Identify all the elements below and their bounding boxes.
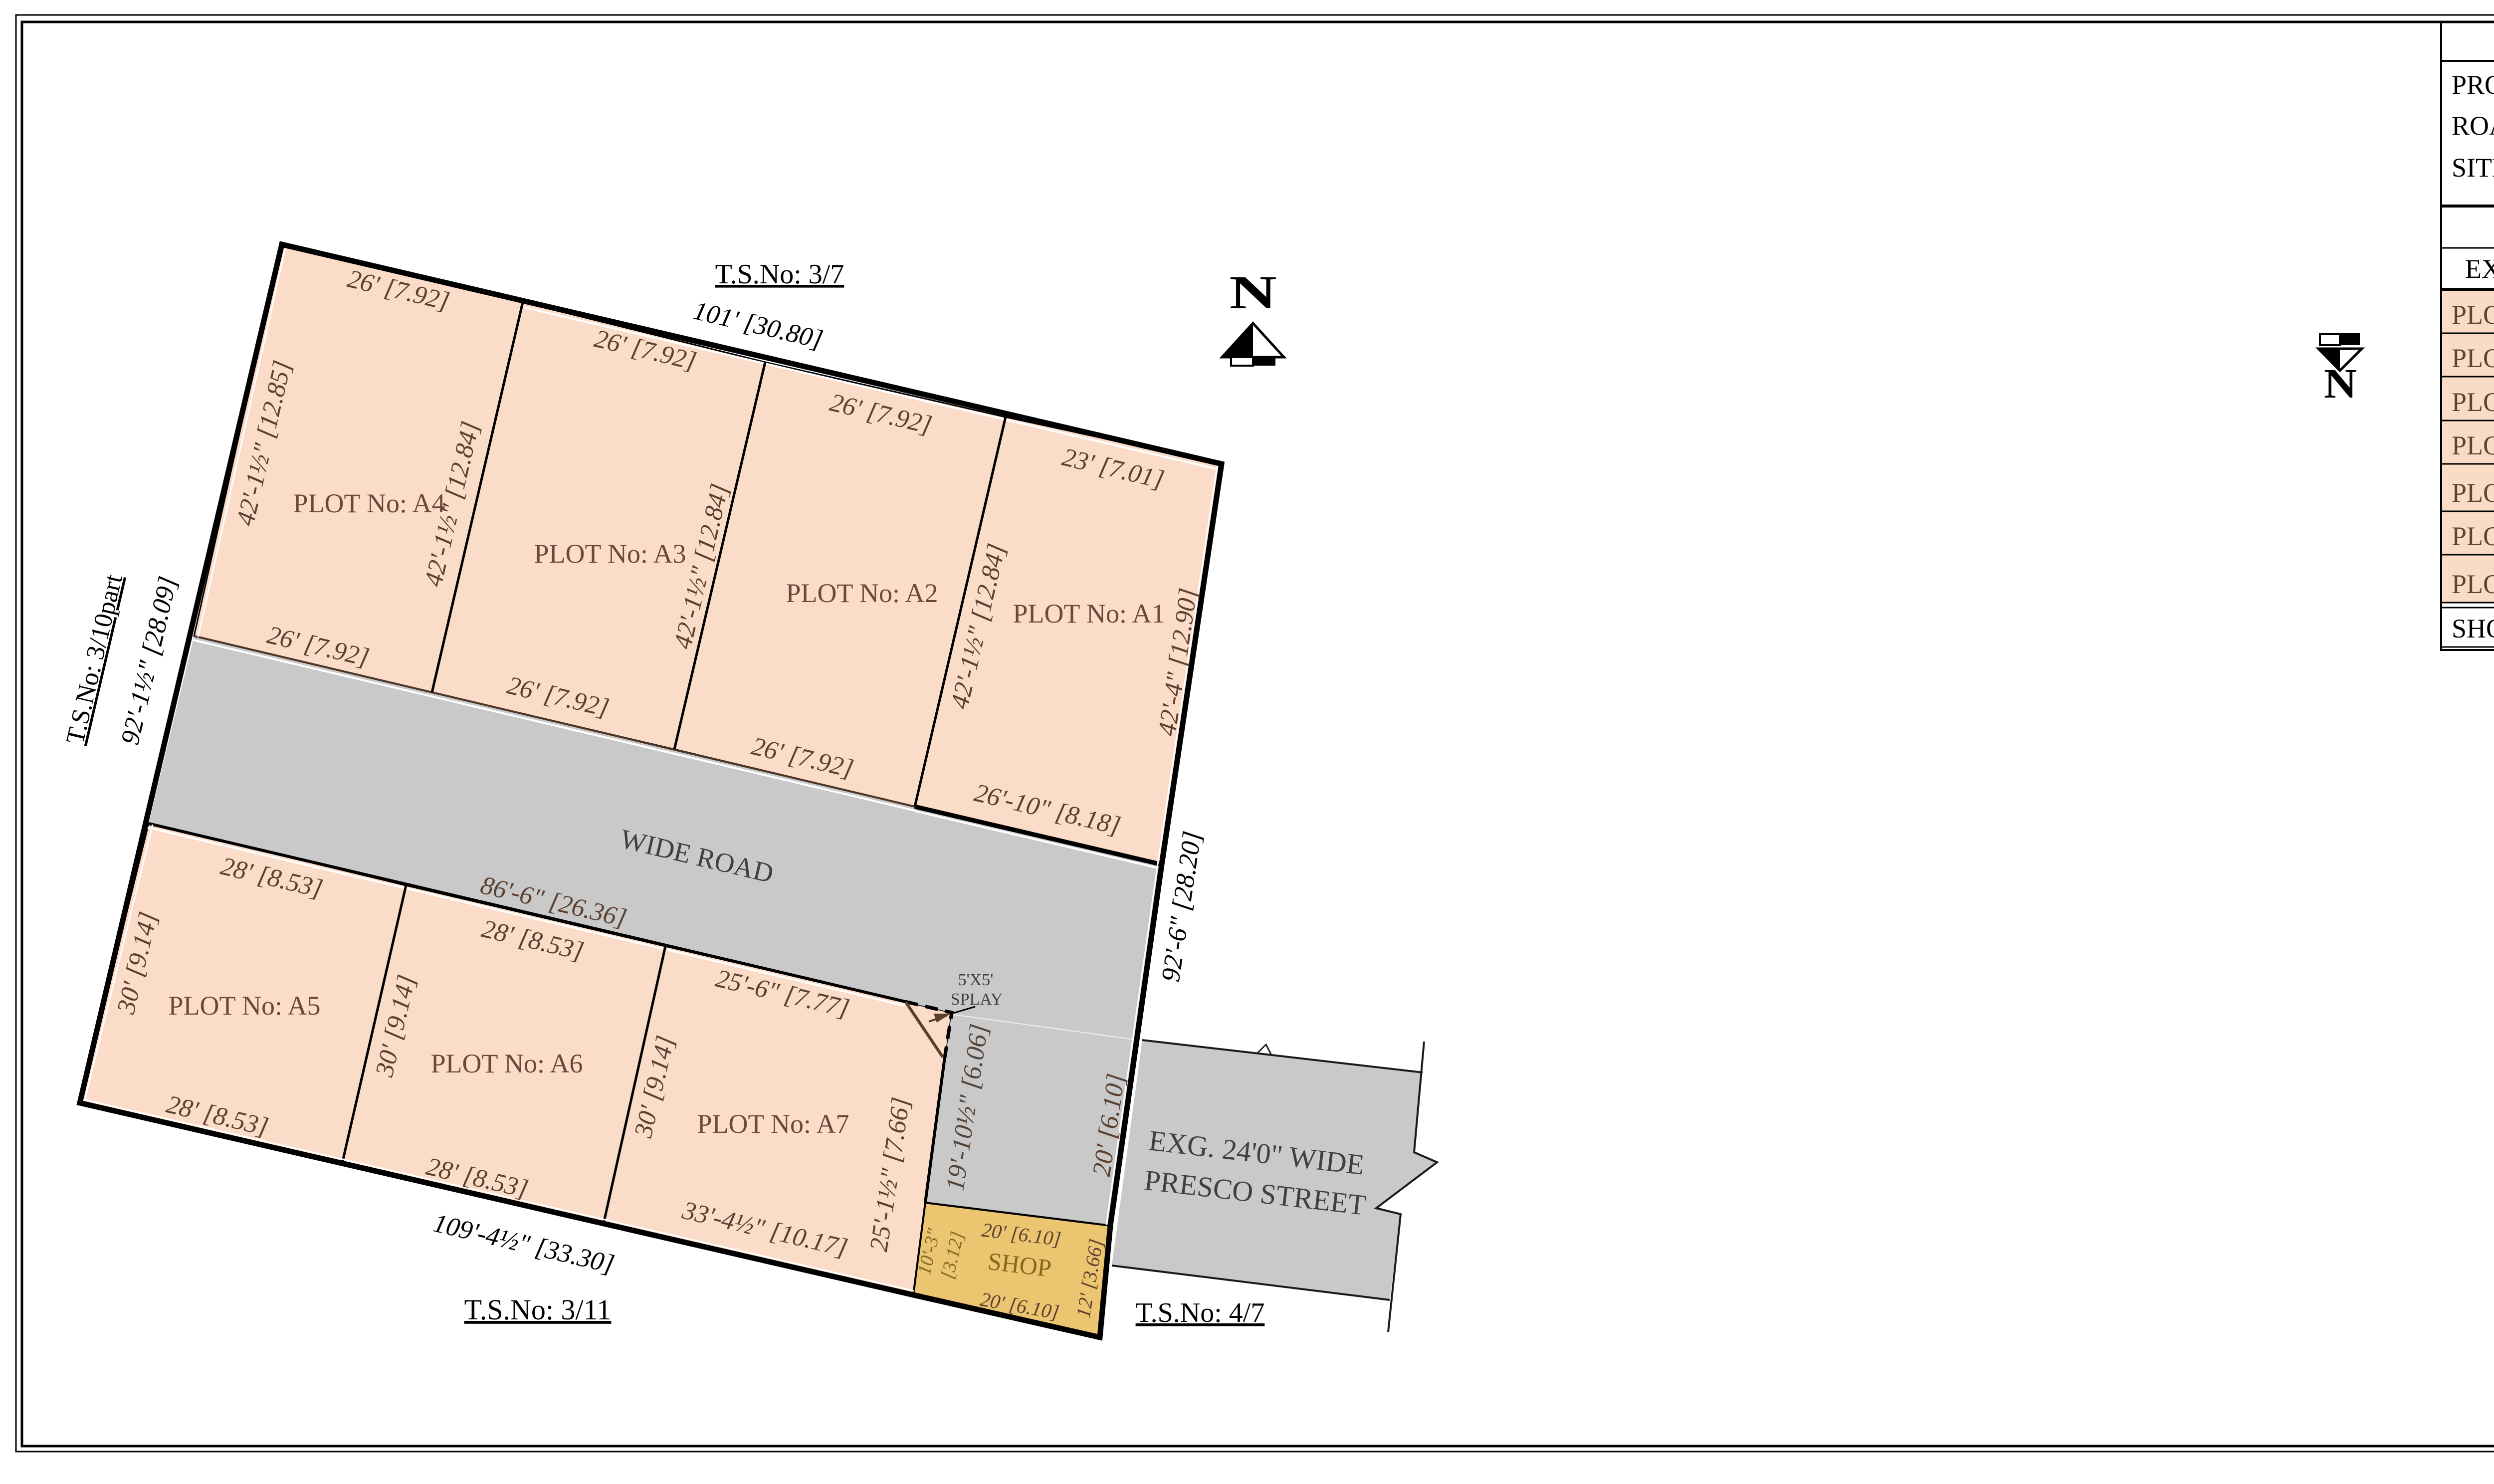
svg-text:T.S.No: 4/7: T.S.No: 4/7 — [1136, 1297, 1265, 1328]
svg-text:PLOT No: A7: PLOT No: A7 — [697, 1109, 849, 1139]
svg-text:SHOP: SHOP — [2452, 614, 2494, 643]
svg-text:PLOT No: A1: PLOT No: A1 — [1013, 599, 1165, 629]
svg-text:5'X5': 5'X5' — [958, 971, 994, 989]
svg-text:EXTENT IN: EXTENT IN — [2465, 254, 2494, 284]
svg-text:SITE BOUNDARY: SITE BOUNDARY — [2452, 153, 2494, 183]
svg-text:PLOT No: A3: PLOT No: A3 — [534, 539, 686, 569]
svg-text:T.S.No: 3/11: T.S.No: 3/11 — [464, 1293, 612, 1326]
svg-text:N: N — [1230, 266, 1277, 319]
svg-text:PLOT No: A6: PLOT No: A6 — [2452, 521, 2494, 551]
svg-text:PLOT No: A2: PLOT No: A2 — [2452, 343, 2494, 373]
svg-text:PLOT No: A7: PLOT No: A7 — [2452, 569, 2494, 599]
svg-text:PLOT No: A2: PLOT No: A2 — [786, 578, 938, 608]
svg-text:PLOT No: A3: PLOT No: A3 — [2452, 387, 2494, 417]
svg-text:PROPOSED: PROPOSED — [2452, 70, 2494, 100]
svg-text:T.S.No: 3/7: T.S.No: 3/7 — [715, 259, 844, 290]
svg-text:PLOT No: A6: PLOT No: A6 — [430, 1049, 583, 1078]
svg-text:PLOT No: A5: PLOT No: A5 — [2452, 478, 2494, 508]
svg-text:PLOT No: A5: PLOT No: A5 — [168, 991, 320, 1021]
svg-text:ROAD: ROAD — [2452, 111, 2494, 141]
svg-text:N: N — [2324, 361, 2357, 407]
svg-text:PLOT No: A4: PLOT No: A4 — [293, 488, 445, 518]
svg-text:PLOT No: A1: PLOT No: A1 — [2452, 300, 2494, 330]
svg-text:PLOT No: A4: PLOT No: A4 — [2452, 430, 2494, 460]
svg-text:SPLAY: SPLAY — [951, 990, 1003, 1009]
